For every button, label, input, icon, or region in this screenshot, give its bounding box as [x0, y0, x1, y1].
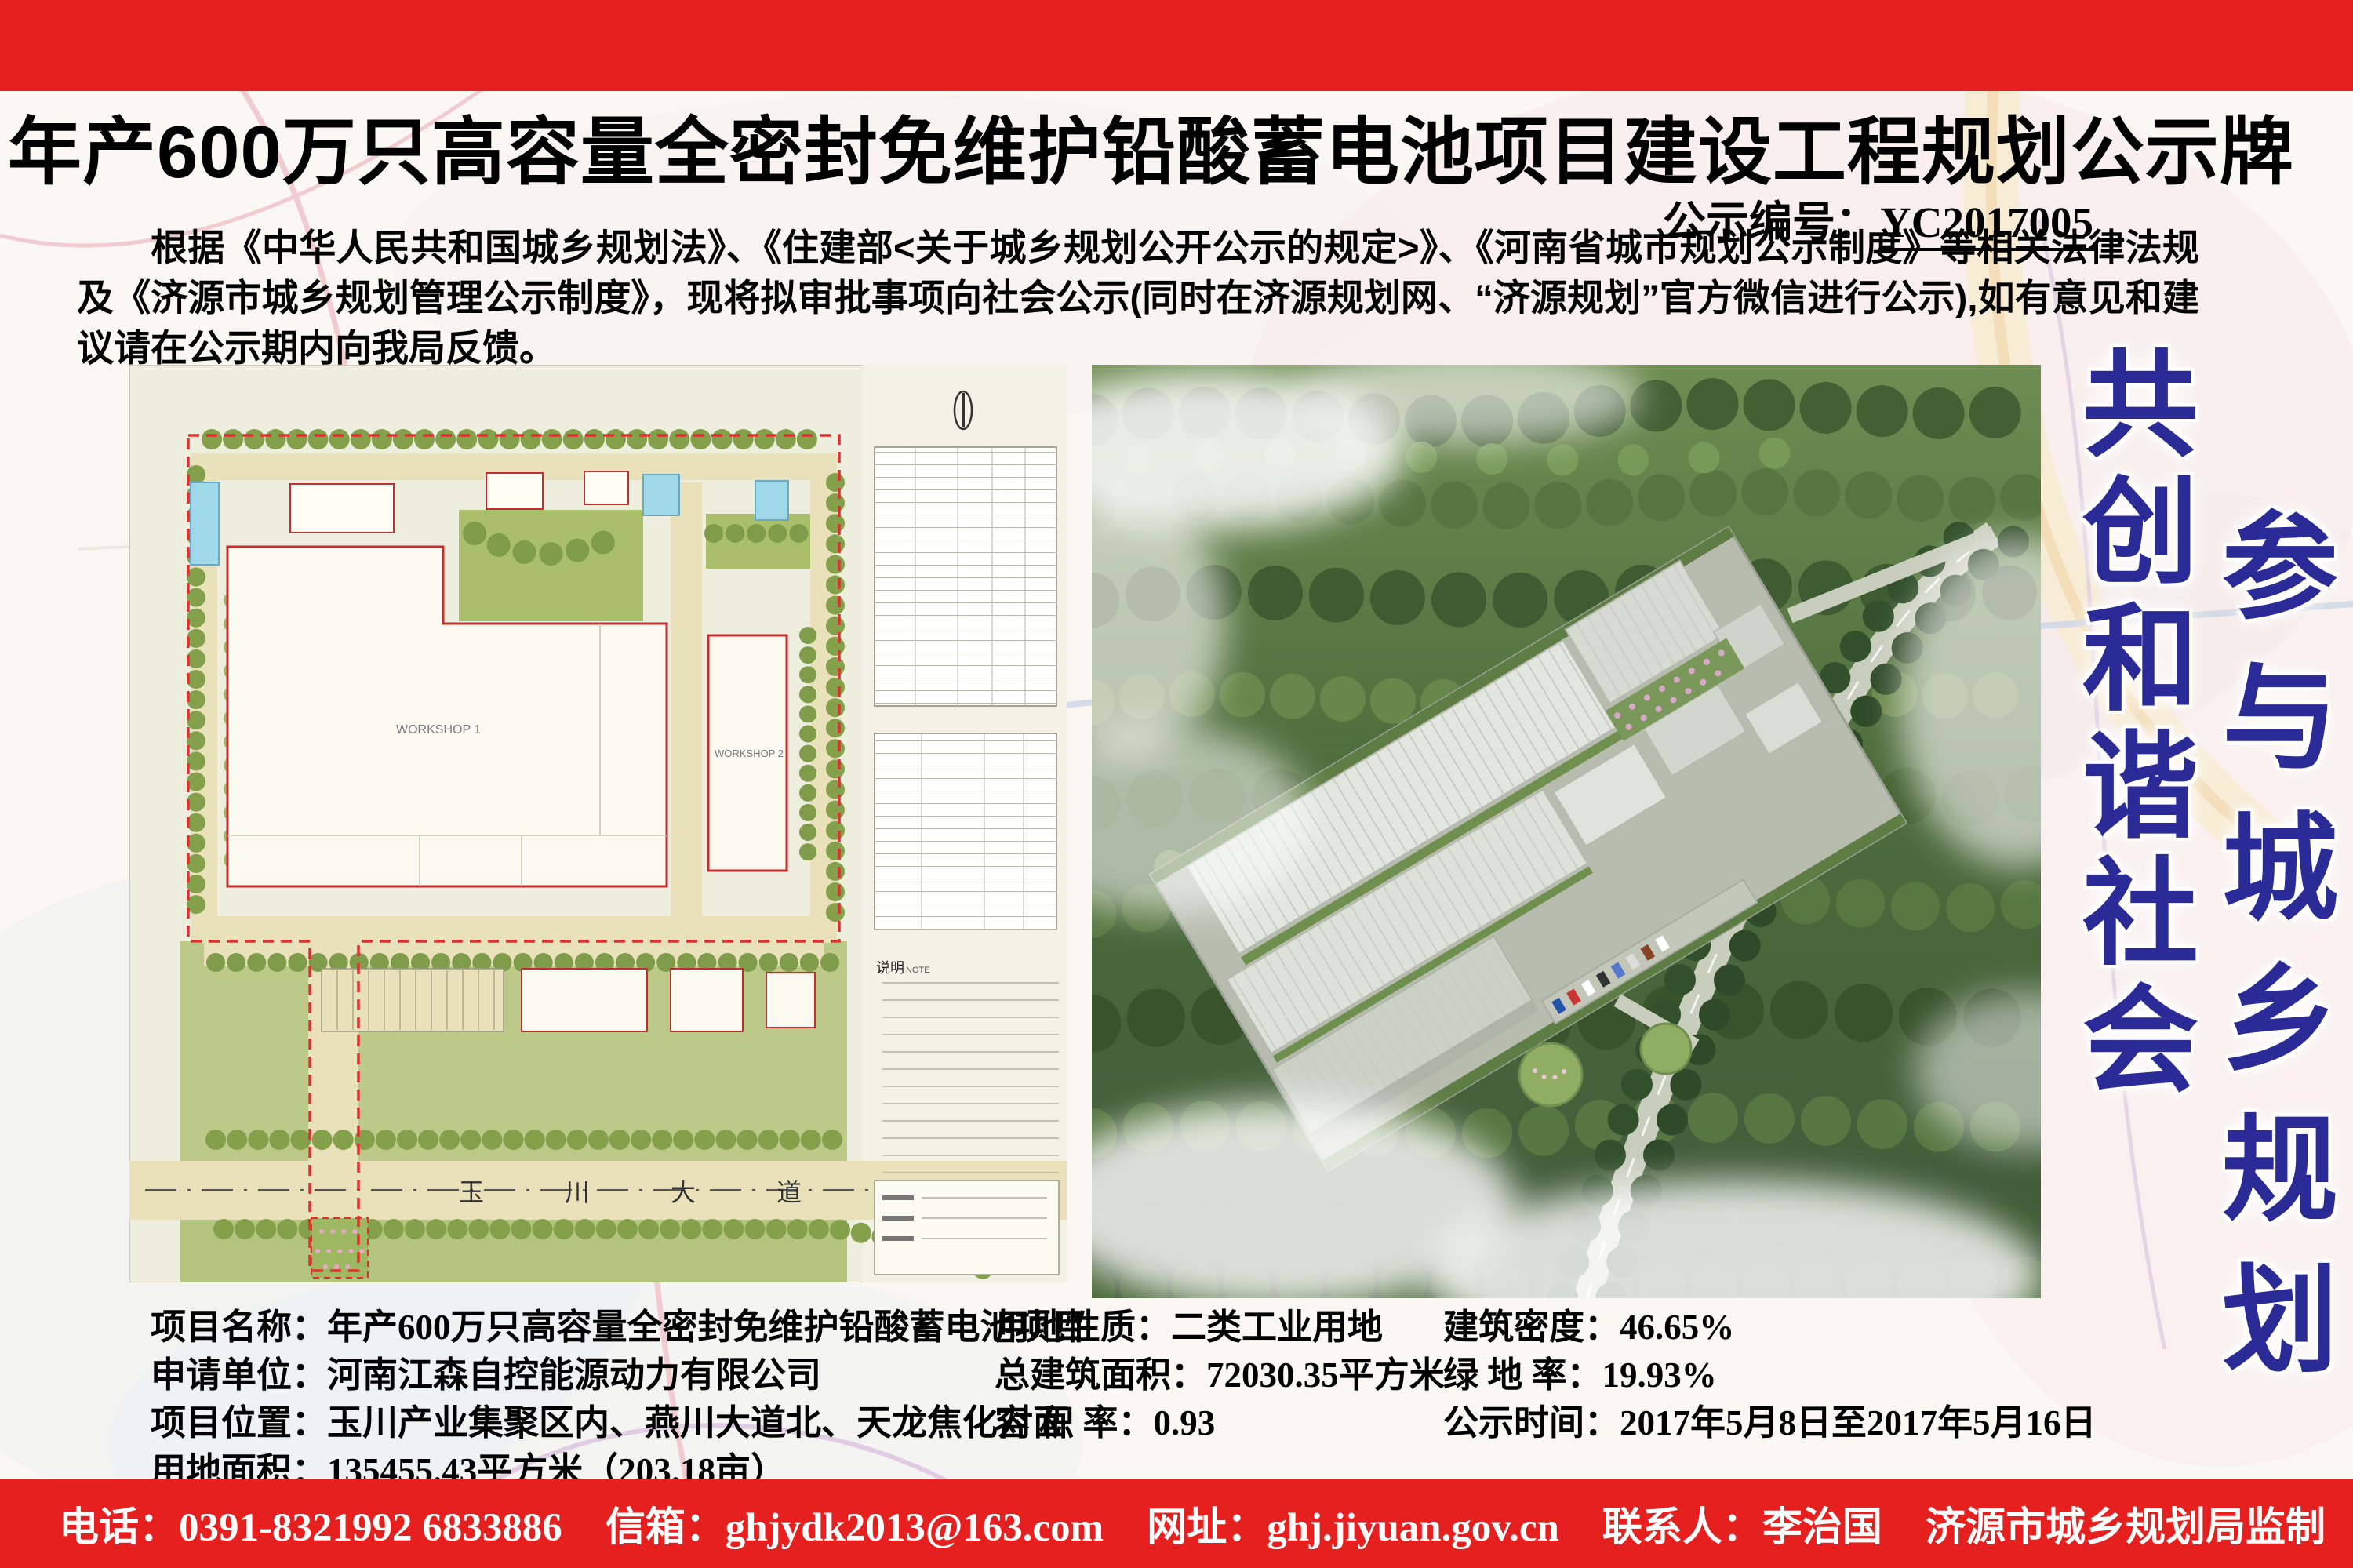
page-title: 年产600万只高容量全密封免维护铅酸蓄电池项目建设工程规划公示牌 （批前）	[8, 93, 2345, 199]
notice-board-poster: 年产600万只高容量全密封免维护铅酸蓄电池项目建设工程规划公示牌 （批前） 公示…	[0, 0, 2353, 1568]
road-name-char: 大	[671, 1178, 696, 1206]
footer-website: 网址：ghj.jiyuan.gov.cn	[1147, 1494, 1559, 1552]
plan-garden	[311, 1218, 368, 1278]
footer-producer: 济源市城乡规划局监制	[1926, 1494, 2326, 1552]
slogan-first: 共创和谐社会	[2082, 349, 2198, 1111]
road-name-char: 玉	[459, 1178, 484, 1206]
plan-note-label: 说明	[876, 960, 904, 976]
footer-bar: 电话：0391-8321992 6833886 信箱：ghjydk2013@16…	[0, 1479, 2353, 1568]
road-name-char: 川	[565, 1178, 590, 1206]
footer-contact: 联系人：李治国	[1602, 1494, 1882, 1552]
footer-phone: 电话：0391-8321992 6833886	[59, 1494, 562, 1552]
intro-paragraph: 根据《中华人民共和国城乡规划法》、《住建部<关于城乡规划公开公示的规定>》、《河…	[77, 223, 2199, 373]
plan-parking	[322, 969, 504, 1031]
plan-info-panel: 说明 NOTE	[875, 447, 1059, 1275]
plan-lawn	[180, 941, 847, 1161]
site-plan-image: 玉 川 大 道 WORKS	[129, 365, 1067, 1282]
footer-email: 信箱：ghjydk2013@163.com	[606, 1494, 1104, 1552]
workshop1-label: WORKSHOP 1	[396, 723, 481, 737]
plan-note-en: NOTE	[906, 966, 930, 975]
workshop2-label: WORKSHOP 2	[715, 748, 784, 759]
slogan-second: 参与城乡规划	[2222, 511, 2338, 1415]
top-red-bar	[0, 0, 2353, 91]
road-name-char: 道	[776, 1178, 802, 1206]
aerial-render-image	[1092, 365, 2041, 1298]
